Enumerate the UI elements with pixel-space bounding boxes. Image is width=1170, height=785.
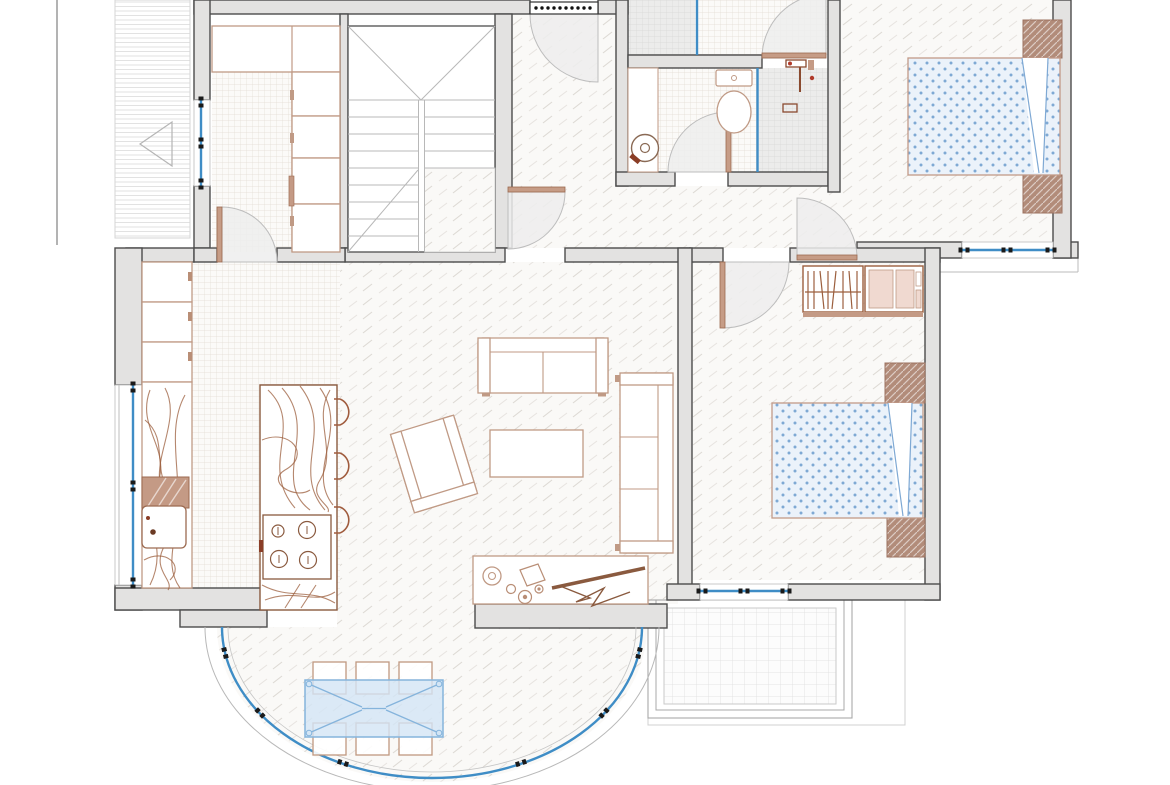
nightstand [1023, 175, 1062, 213]
cooktop-knob [259, 540, 263, 552]
closet-shelf [292, 158, 340, 204]
glass-dining-table [305, 680, 443, 737]
exterior-walkway [115, 0, 190, 238]
closet-top-cabinet [212, 26, 340, 72]
toilet [716, 70, 752, 133]
window-closet [194, 97, 210, 190]
closet-shelf [292, 116, 340, 158]
sofa-large [615, 373, 673, 553]
tv-console [473, 556, 648, 606]
kitchen-sink [142, 506, 186, 548]
dresser [865, 266, 923, 312]
nightstand [1023, 20, 1062, 58]
window-kitchen [115, 382, 142, 589]
balcony [648, 600, 905, 725]
double-bed-2 [772, 403, 923, 518]
sofa-small [478, 338, 608, 397]
kitchen-island [259, 385, 337, 610]
floor-plan [0, 0, 1170, 785]
floor-plan-screenshot [0, 0, 1170, 785]
nightstand [887, 518, 925, 557]
entry-mat [530, 2, 598, 14]
floor-passage-terrace [337, 590, 475, 627]
balcony-floor [664, 608, 836, 704]
ledge-lines [940, 258, 1078, 272]
dish-rack [142, 477, 189, 508]
coffee-table [490, 430, 583, 477]
window-bedroom-2 [697, 584, 792, 600]
wardrobe-base [803, 312, 923, 317]
closet-shelf [292, 204, 340, 252]
window-bedroom-1 [959, 242, 1057, 258]
cooktop [259, 515, 331, 579]
floor-wc-shower [628, 0, 695, 55]
double-bed-1 [908, 58, 1060, 175]
closet-shelf [292, 72, 340, 116]
floor-shower [758, 68, 828, 172]
open-wardrobe [803, 266, 863, 312]
nightstand [885, 363, 925, 403]
staircase [348, 26, 495, 252]
